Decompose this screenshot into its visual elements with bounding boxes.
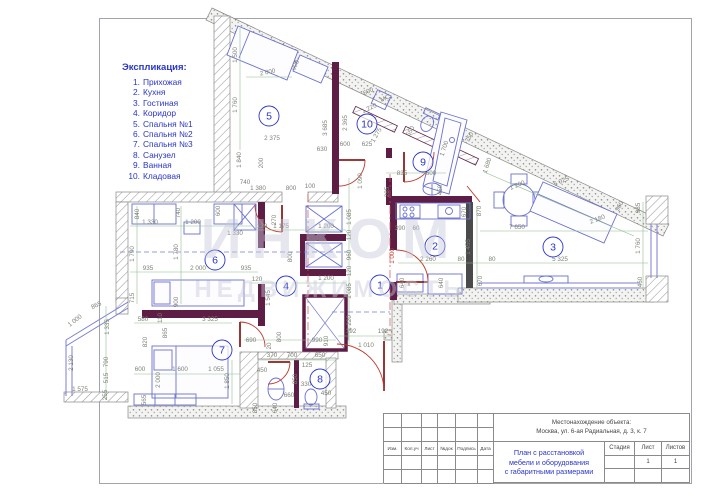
revision-col-label: Дата [478, 442, 494, 456]
dimension-label: 865 [90, 300, 103, 311]
dimension-label: 100 [305, 183, 316, 190]
dimension-label: 1 850 [224, 373, 231, 389]
sheets-value: 1 [662, 456, 689, 470]
dimension-label: 700 [287, 352, 298, 359]
dimension-label: 1 330 [142, 219, 158, 226]
revision-col-label: №док [438, 442, 456, 456]
room-number: 10 [361, 119, 373, 131]
dimension-label: 850 [292, 373, 299, 384]
location-label: Местонахождение объекта: [494, 418, 689, 427]
dimension-label: 935 [143, 265, 154, 272]
legend-item: 1.Прихожая [122, 77, 193, 87]
legend-item: 8.Санузел [122, 150, 193, 160]
room5-left-wall [214, 16, 230, 194]
room-number: 8 [317, 374, 323, 386]
dimension-label: 1 010 [358, 342, 374, 349]
revision-col-label: Изм. [384, 442, 402, 456]
dimension-label: 990 [312, 337, 323, 344]
dimension-label: 2 000 [155, 372, 162, 388]
room6-top-wall [116, 192, 282, 202]
document-title: План с расстановкой мебели и оборудовани… [494, 442, 605, 483]
room-number: 5 [266, 111, 272, 123]
location-value: Москва, ул. 6-ая Радиальная, д. 3, к. 7 [494, 427, 689, 436]
bottom-wall [128, 406, 346, 418]
dimension-label: 1 055 [208, 366, 224, 373]
dimension-label: 450 [321, 390, 332, 397]
revision-col-label: Лист [422, 442, 438, 456]
dimension-label: 1 090 [357, 173, 364, 189]
room3-bottom-wall [458, 288, 654, 302]
title-block: Изм.Кол.учЛист№докПодписьДата Местонахож… [383, 413, 690, 483]
dimension-label: 1 500 [232, 47, 239, 63]
revision-col-label: Подпись [456, 442, 478, 456]
room-number: 9 [420, 157, 426, 169]
bay-bottom-wall [64, 392, 128, 402]
dimension-label: 1 455 [465, 239, 472, 255]
dimension-label: 850 [252, 402, 259, 413]
legend-item: 7.Спальня №3 [122, 139, 193, 149]
dimension-label: 450 [437, 184, 444, 195]
room-number: 3 [550, 242, 556, 254]
dimension-label: 625 [362, 141, 373, 148]
dimension-label: 630 [317, 146, 328, 153]
sheet-value: 1 [635, 456, 662, 470]
legend-item: 10.Кладовая [122, 171, 193, 181]
dimension-label: 565 [141, 394, 148, 405]
dimension-label: 192 [346, 328, 357, 335]
dimension-label: 2 365 [342, 115, 349, 131]
dimension-label: 1 575 [72, 386, 88, 393]
dimension-label: 870 [476, 205, 483, 216]
dimension-label: 1 380 [250, 185, 266, 192]
dimension-label: 192 [378, 328, 389, 335]
dimension-label: 670 [461, 206, 468, 217]
dimension-label: 515 [103, 372, 110, 383]
legend-item: 4.Коридор [122, 108, 193, 118]
dimension-label: 1 200 [185, 219, 201, 226]
dimension-label: 820 [142, 336, 149, 347]
dimension-label: 790 [103, 356, 110, 367]
dimension-label: 715 [129, 292, 136, 303]
legend: Экспликация: 1.Прихожая2.Кухня3.Гостиная… [122, 62, 193, 181]
dimension-label: 900 [173, 296, 180, 307]
legend-item: 2.Кухня [122, 87, 193, 97]
toilet-room8 [305, 389, 317, 405]
dimension-label: 3 325 [202, 316, 218, 323]
dimension-label: 600 [340, 141, 351, 148]
shaft-wall [240, 352, 258, 408]
watermark-line1: ИНКОМ [201, 207, 460, 271]
dimension-label: 650 [315, 352, 326, 359]
wardrobe-room5 [293, 55, 328, 83]
dimension-label: 1 200 [509, 179, 527, 192]
dimension-label: 255 [102, 389, 109, 400]
dimension-label: 20 [266, 342, 273, 350]
right-wall-bottom [646, 276, 668, 302]
legend-title: Экспликация: [122, 62, 193, 73]
dimension-label: 2 375 [264, 135, 280, 142]
page: { "legend": { "title": "Экспликация:", "… [0, 0, 701, 496]
legend-item: 6.Спальня №2 [122, 129, 193, 139]
dimension-label: 1 335 [104, 319, 111, 335]
stage-value [605, 456, 635, 470]
dimension-label: 600 [135, 366, 146, 373]
dimension-label: 125 [302, 362, 313, 369]
legend-item: 5.Спальня №1 [122, 119, 193, 129]
right-wall-top [646, 196, 668, 224]
dimension-label: 985 [635, 202, 642, 213]
dimension-label: 285 [384, 186, 391, 197]
revision-col-label: Кол.уч [402, 442, 422, 456]
dimension-label: 910 [323, 335, 330, 346]
dimension-label: 1 840 [236, 152, 243, 168]
legend-item: 9.Ванная [122, 160, 193, 170]
dimension-label: 460 [637, 276, 644, 287]
sheets-header: Листов [662, 442, 689, 456]
sheet-info: Стадия Лист Листов 1 1 [605, 442, 689, 483]
room-number: 7 [219, 345, 225, 357]
dimension-label: 7 650 [509, 224, 525, 231]
dimension-label: 370 [267, 352, 278, 359]
dimension-label: 580 [138, 316, 149, 323]
dimension-label: 1 790 [129, 246, 136, 262]
revision-table: Изм.Кол.учЛист№докПодписьДата [383, 413, 493, 483]
location-cell: Местонахождение объекта: Москва, ул. 6-а… [494, 414, 689, 442]
legend-items: 1.Прихожая2.Кухня3.Гостиная4.Коридор5.Сп… [122, 77, 193, 181]
dimension-label: 840 [134, 208, 141, 219]
dimension-label: 110 [157, 312, 164, 323]
dimension-label: 660 [284, 392, 295, 399]
dimension-label: 3 685 [322, 120, 329, 136]
dimension-label: 200 [258, 157, 265, 168]
dimension-label: 800 [286, 185, 297, 192]
dimension-label: 450 [257, 367, 268, 374]
dimension-label: 835 [397, 170, 408, 177]
dimension-label: 800 [276, 331, 283, 342]
stage-header: Стадия [605, 442, 635, 456]
dimension-label: 670 [477, 275, 484, 286]
dimension-label: 740 [175, 207, 182, 218]
dimension-label: 1 780 [173, 244, 180, 260]
dimension-label: 1 760 [232, 97, 239, 113]
sheet-header: Лист [635, 442, 662, 456]
dimension-label: 690 [246, 337, 257, 344]
dimension-label: 865 [162, 327, 169, 338]
dimension-label: 640 [272, 402, 279, 413]
dimension-label: 1 000 [67, 313, 84, 329]
dimension-label: 1 680 [482, 156, 494, 174]
watermark: ИНКОМ НЕДВИЖИМОСТЬ [194, 207, 465, 303]
dimension-label: 1 600 [172, 366, 188, 373]
dimension-label: 80 [488, 256, 496, 263]
legend-item: 3.Гостиная [122, 98, 193, 108]
lobby-wall [392, 300, 402, 362]
watermark-line2: НЕДВИЖИМОСТЬ [194, 276, 465, 303]
dimension-label: 1 760 [635, 238, 642, 254]
dimension-label: 740 [240, 179, 251, 186]
dimension-label: 2 130 [68, 355, 75, 371]
